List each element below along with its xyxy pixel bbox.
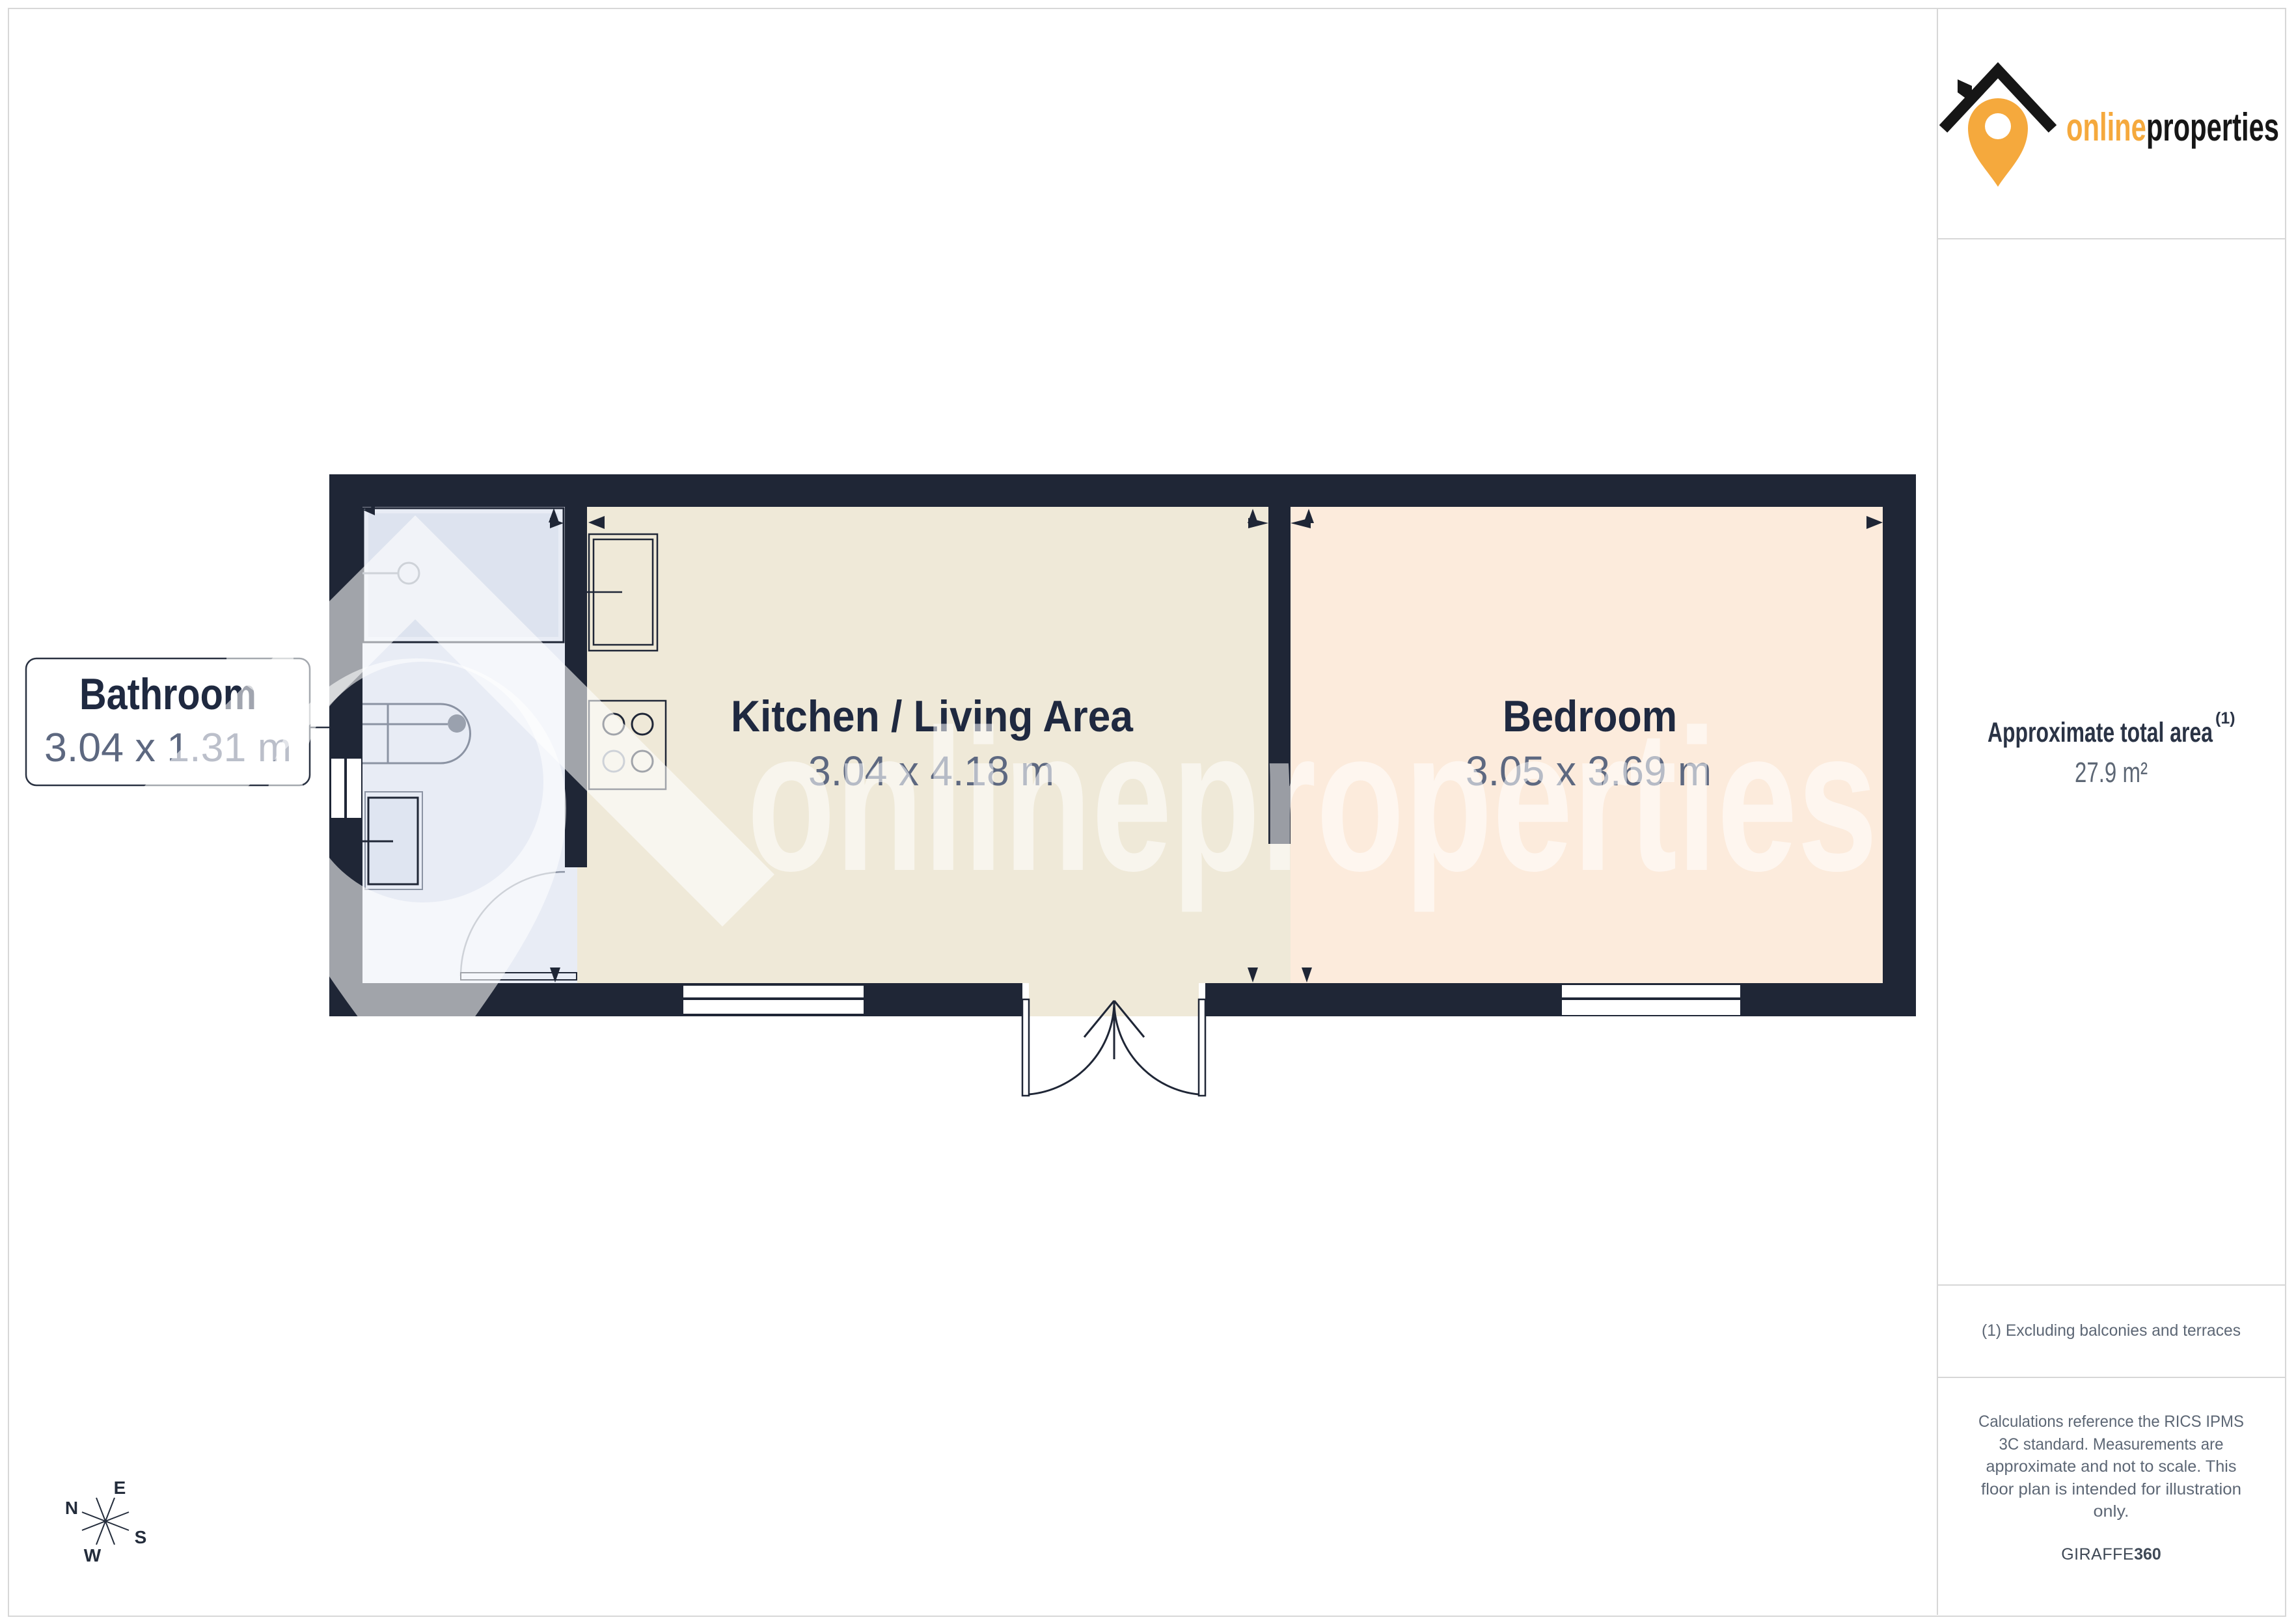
svg-text:onlineproperties: onlineproperties xyxy=(747,687,1878,914)
svg-text:3C standard. Measurements are: 3C standard. Measurements are xyxy=(1999,1435,2224,1454)
svg-text:E: E xyxy=(114,1478,126,1498)
svg-text:GIRAFFE360: GIRAFFE360 xyxy=(2061,1545,2161,1563)
svg-text:W: W xyxy=(84,1545,102,1565)
svg-text:approximate and not to scale.: approximate and not to scale. This xyxy=(1986,1457,2237,1476)
svg-text:S: S xyxy=(135,1527,147,1547)
svg-text:only.: only. xyxy=(2094,1502,2129,1521)
svg-text:floor plan is intended for ill: floor plan is intended for illustration xyxy=(1981,1480,2241,1498)
svg-text:27.9 m²: 27.9 m² xyxy=(2075,757,2148,789)
svg-text:Approximate total area: Approximate total area xyxy=(1988,717,2213,748)
svg-text:(1): (1) xyxy=(2215,709,2235,727)
svg-text:onlineproperties: onlineproperties xyxy=(2066,105,2279,149)
svg-text:N: N xyxy=(65,1498,78,1518)
svg-text:(1) Excluding balconies and te: (1) Excluding balconies and terraces xyxy=(1982,1321,2241,1340)
svg-text:Calculations reference the RIC: Calculations reference the RICS IPMS xyxy=(1978,1413,2244,1431)
